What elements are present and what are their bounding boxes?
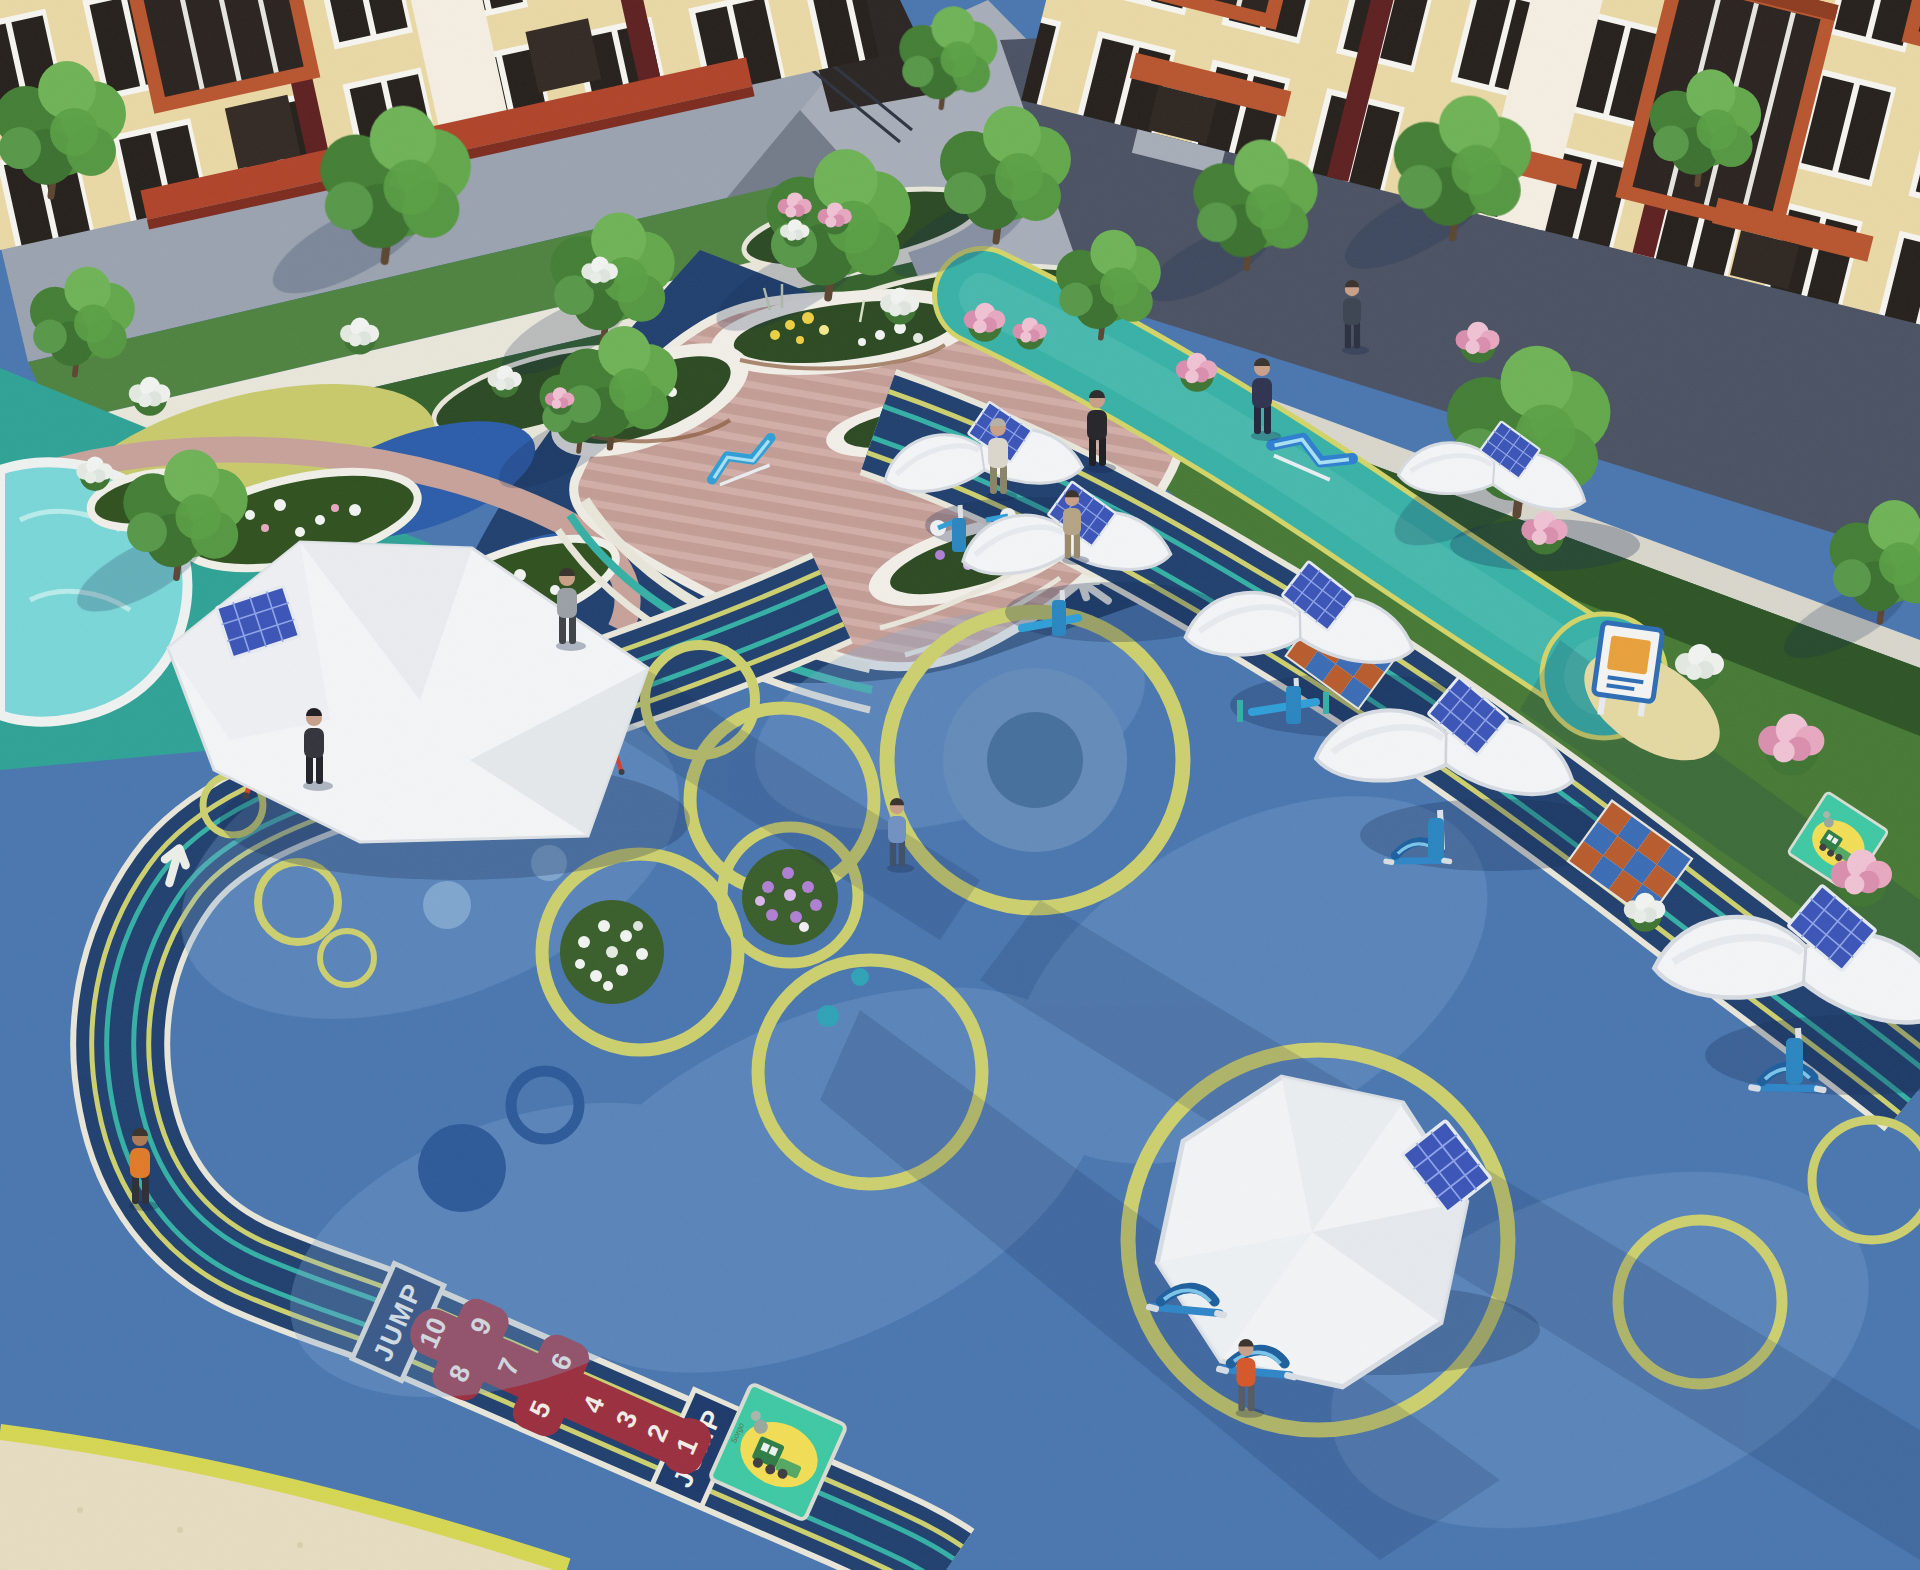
texture-grain — [0, 0, 1920, 1570]
courtyard-playground-render: JUMP JUMP 10 9 8 7 6 5 4 3 2 1 — [0, 0, 1920, 1570]
